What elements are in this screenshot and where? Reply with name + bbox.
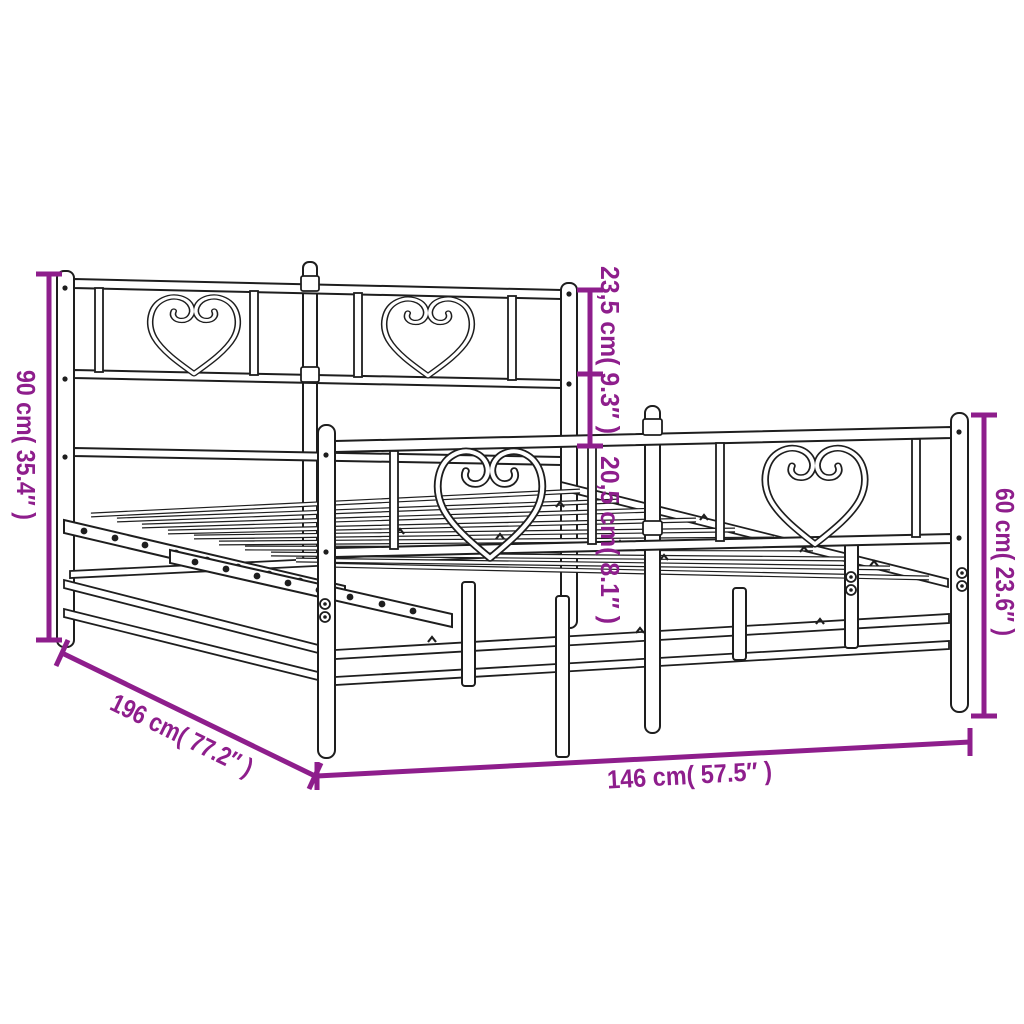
bolt-dot: [566, 381, 571, 386]
footboard-divider: [588, 446, 596, 544]
footboard-center-post: [645, 406, 660, 733]
bolt-dot: [956, 535, 961, 540]
bolt-dot: [62, 376, 67, 381]
bolt-dot: [62, 454, 67, 459]
rail-connector: [643, 419, 662, 435]
footboard-divider: [390, 451, 398, 549]
headboard-divider: [354, 293, 362, 377]
support-leg: [462, 582, 475, 686]
bolt-dot: [62, 285, 67, 290]
overall-height-label: 90 cm( 35.4″ ): [11, 370, 41, 520]
bolt-dot: [323, 452, 328, 457]
support-leg: [556, 596, 569, 757]
headboard-center-post: [303, 262, 317, 562]
footboard-divider: [912, 439, 920, 537]
footboard-divider: [716, 443, 724, 541]
product-dimension-diagram: 90 cm( 35.4″ ) 23,5 cm( 9.3″ ) 20,5 cm( …: [0, 0, 1024, 1024]
footboard-right-post: [951, 413, 968, 712]
rail-connector: [301, 367, 319, 382]
headboard-divider: [250, 291, 258, 375]
bolt-dot: [323, 549, 328, 554]
bed-frame-drawing: 90 cm( 35.4″ ) 23,5 cm( 9.3″ ) 20,5 cm( …: [0, 0, 1024, 1024]
headboard-divider: [95, 288, 103, 372]
headboard-right-post: [561, 283, 577, 628]
headboard-divider: [508, 296, 516, 380]
bolt-dot: [566, 291, 571, 296]
rail-connector: [301, 276, 319, 291]
footboard-left-post: [318, 425, 335, 758]
support-leg: [733, 588, 746, 660]
rail-connector: [643, 521, 662, 535]
headboard-upper-label: 23,5 cm( 9.3″ ): [595, 266, 625, 434]
headboard-lower-label: 20,5 cm( 8.1″ ): [595, 456, 625, 624]
bolt-dot: [956, 429, 961, 434]
footboard-height-label: 60 cm( 23.6″ ): [990, 488, 1020, 636]
